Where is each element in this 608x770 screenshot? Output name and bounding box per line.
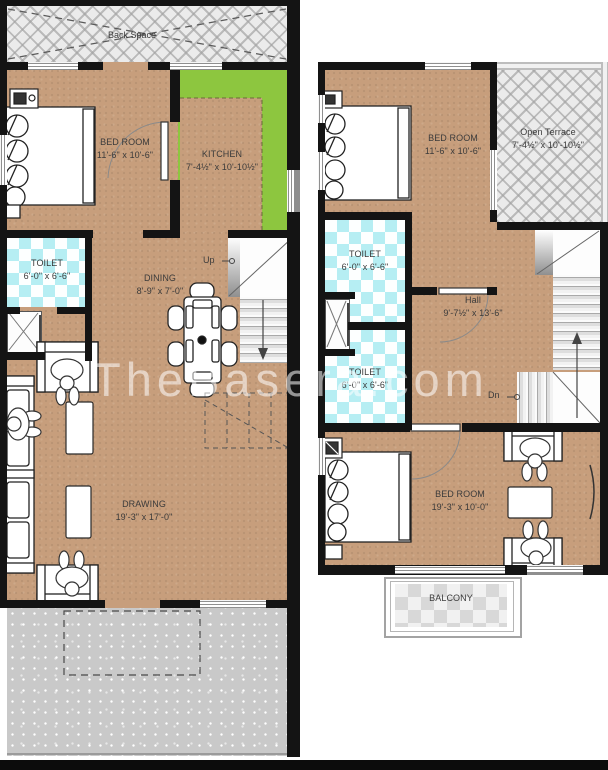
wall — [228, 230, 300, 238]
wall — [266, 600, 300, 608]
terrace-parapet — [497, 62, 608, 70]
wall — [143, 230, 180, 238]
wall — [318, 212, 412, 220]
bottom-border-bar — [0, 760, 608, 770]
window — [287, 170, 300, 212]
window — [318, 438, 325, 475]
window — [170, 62, 222, 70]
room-label-hall: Hall 9'-7½" x 13'-6" — [423, 294, 523, 320]
stair-landing — [553, 230, 600, 275]
balcony-label: BALCONY — [391, 592, 511, 605]
wall — [0, 230, 93, 238]
stairs-up-label: Up — [203, 255, 215, 265]
stair-landing-step — [228, 237, 240, 297]
wall — [57, 307, 92, 314]
balcony-floor — [395, 584, 507, 627]
wall — [318, 62, 325, 575]
balcony-door — [395, 566, 505, 574]
yard-edge-line — [7, 753, 287, 755]
wall — [497, 222, 608, 230]
main-entrance-opening — [105, 600, 160, 608]
shower-cubicle — [325, 299, 350, 351]
wall — [7, 352, 45, 360]
window — [200, 600, 266, 608]
wall — [85, 237, 92, 361]
wall — [490, 210, 497, 222]
room-label-kitchen: KITCHEN 7'-4½" x 10'-10½" — [164, 148, 280, 174]
window — [425, 62, 471, 70]
wall — [462, 423, 608, 432]
window — [318, 95, 325, 123]
wall — [348, 322, 412, 330]
window — [318, 152, 325, 190]
wall — [160, 600, 200, 608]
room-label-bedroom-lower: BED ROOM 19'-3" x 10'-0" — [390, 488, 530, 514]
room-label-dining: DINING 8'-9" x 7'-0" — [110, 272, 210, 298]
shower-cubicle — [7, 311, 42, 354]
room-label-terrace: Open Terrace 7'-4½" x 10'-10½" — [490, 126, 606, 152]
front-yard — [7, 608, 287, 756]
window — [0, 135, 7, 185]
stair-turn — [553, 372, 600, 423]
floor-plan-image: Back Space BED ROOM 11'-6" x 10'-6" KITC… — [0, 0, 608, 770]
window — [28, 62, 78, 70]
wall — [0, 307, 20, 314]
window — [490, 150, 497, 210]
wall — [170, 180, 180, 232]
back-space-label: Back Space — [108, 30, 156, 40]
room-label-toilet-g: TOILET 6'-0" x 6'-6" — [6, 257, 88, 283]
wall — [0, 600, 105, 608]
staircase-down — [553, 275, 600, 370]
room-label-drawing: DRAWING 19'-3" x 17'-0" — [74, 498, 214, 524]
wall — [170, 70, 180, 122]
staircase-lower-flight — [517, 372, 553, 423]
wall — [600, 222, 608, 575]
back-door-opening — [103, 62, 148, 70]
wall — [318, 423, 410, 432]
stair-landing-step — [535, 230, 553, 275]
room-label-toilet-upper: TOILET 6'-0" x 6'-6" — [324, 248, 406, 274]
watermark-text: TheBasera.com — [92, 352, 512, 407]
wall — [0, 0, 300, 6]
stair-landing — [240, 237, 293, 297]
window — [527, 565, 583, 575]
wall — [318, 292, 355, 299]
wall — [0, 0, 7, 608]
